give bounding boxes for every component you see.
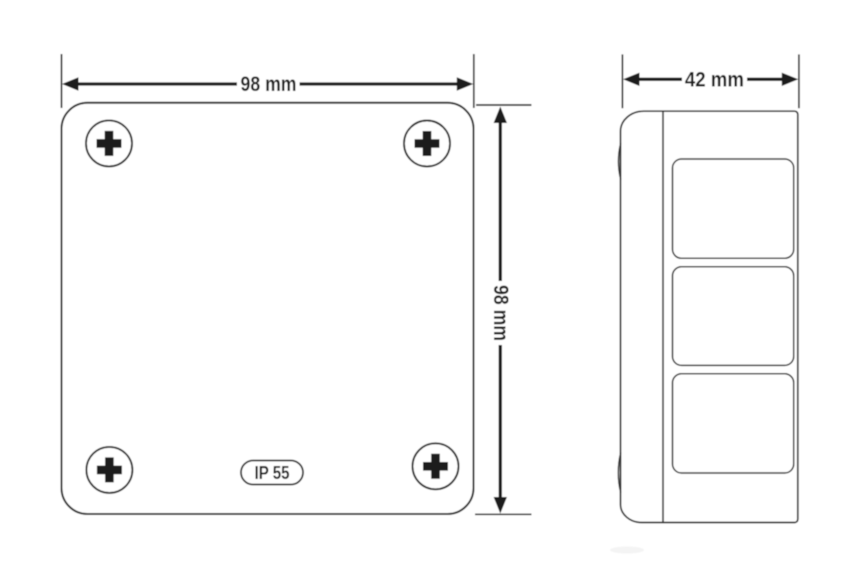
svg-text:42 mm: 42 mm: [685, 68, 744, 91]
svg-text:98 mm: 98 mm: [241, 73, 297, 96]
svg-text:IP 55: IP 55: [255, 463, 290, 483]
svg-text:98 mm: 98 mm: [489, 285, 512, 341]
